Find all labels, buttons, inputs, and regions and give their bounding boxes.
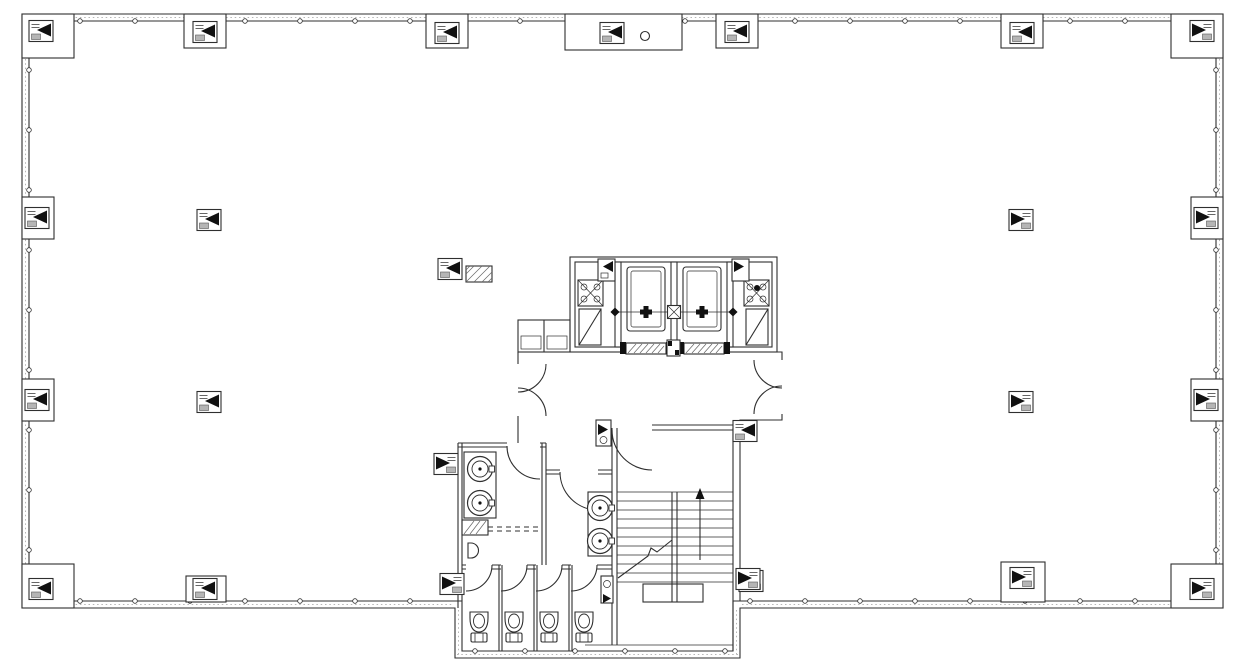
mullion-dot: [958, 19, 963, 24]
lobby-left-double-door: [518, 364, 546, 416]
wash-basin: [588, 529, 615, 554]
mullion-dot: [573, 649, 578, 654]
column-tag: [600, 23, 624, 44]
column-tag: [197, 210, 221, 231]
mullion-dot: [1133, 599, 1138, 604]
column-tag: [25, 208, 49, 229]
mullion-dot: [408, 19, 413, 24]
plumbing-fixtures: [468, 457, 615, 643]
mullion-dot: [408, 599, 413, 604]
column-tag: [1010, 23, 1034, 44]
stair-treads: [617, 492, 733, 582]
wash-basin: [588, 496, 615, 521]
column-tag: [1194, 390, 1218, 411]
mullion-dot: [793, 19, 798, 24]
mullion-dot: [27, 128, 32, 133]
mullion-dot: [1214, 68, 1219, 73]
stair-door-arc: [612, 430, 652, 470]
column-tag: [725, 22, 749, 43]
mullion-dot: [518, 19, 523, 24]
hatched-floor-box: [466, 266, 492, 282]
floor-access-markers: [466, 266, 492, 282]
womens-door-arc: [507, 446, 540, 479]
mullion-dot: [78, 599, 83, 604]
toilet: [505, 612, 523, 642]
lobby-right-double-door: [754, 360, 782, 414]
lobby-right-wall: [740, 352, 782, 428]
floor-box-hatch: [466, 266, 492, 282]
mullion-dot: [1214, 128, 1219, 133]
shaft-divider: [615, 262, 621, 347]
mullion-dot: [523, 649, 528, 654]
floor-plan-canvas: [0, 0, 1245, 663]
mullion-dot: [1214, 428, 1219, 433]
column-tag: [1190, 21, 1214, 42]
privacy-screen-dashed: [488, 527, 542, 531]
mullion-dot: [243, 19, 248, 24]
elevator-door-threshold-right: [678, 342, 730, 354]
mullion-dot: [748, 599, 753, 604]
mens-top-wall: [546, 470, 612, 474]
mullion-dot: [848, 19, 853, 24]
column-tag: [25, 390, 49, 411]
mullion-dot: [133, 599, 138, 604]
mullion-dot: [27, 428, 32, 433]
column-tag: [29, 579, 53, 600]
mullion-dot: [1214, 188, 1219, 193]
mullion-dot: [913, 599, 918, 604]
column-tag: [1190, 579, 1214, 600]
column-tag: [440, 574, 464, 595]
column-tag: [197, 392, 221, 413]
mullion-dot: [1214, 488, 1219, 493]
column-tag: [1010, 568, 1034, 589]
elevator-door-threshold-left: [620, 342, 672, 354]
column-tag: [29, 21, 53, 42]
toilet: [540, 612, 558, 642]
toilet: [470, 612, 488, 642]
restroom-center-wall: [542, 443, 546, 565]
mullion-dot: [298, 19, 303, 24]
mullion-dot: [1214, 368, 1219, 373]
mullion-dot: [673, 649, 678, 654]
fire-hose-tag: [596, 420, 611, 446]
mullion-dot: [27, 188, 32, 193]
mullion-dot: [473, 649, 478, 654]
mullion-dot: [1068, 19, 1073, 24]
column-tag: [434, 454, 458, 475]
mullion-dot: [353, 19, 358, 24]
mullion-dot: [903, 19, 908, 24]
wash-basin: [468, 457, 495, 482]
column-tag: [736, 569, 760, 590]
hydrant-tag: [601, 576, 613, 603]
stair-walls: [612, 420, 740, 651]
column-tag: [1009, 210, 1033, 231]
mullion-dot: [1078, 599, 1083, 604]
mullion-dot: [27, 368, 32, 373]
mullion-dot: [298, 599, 303, 604]
mullion-dot: [723, 649, 728, 654]
column-tag: [193, 22, 217, 43]
mullion-dot: [27, 488, 32, 493]
mullion-dot: [1214, 548, 1219, 553]
mullion-dot: [623, 649, 628, 654]
elevator-core: [570, 257, 777, 356]
column-tag: [1194, 208, 1218, 229]
column-tag: [733, 421, 757, 442]
mullion-dot: [243, 599, 248, 604]
mullion-dot: [78, 19, 83, 24]
mullion-dot: [1214, 308, 1219, 313]
shaft-divider: [671, 262, 677, 347]
mullion-dot: [27, 248, 32, 253]
toilet: [575, 612, 593, 642]
stair-direction-arrow: [696, 488, 705, 499]
column-tag: [435, 23, 459, 44]
mullion-dot: [968, 599, 973, 604]
wash-basin: [468, 491, 495, 516]
mullion-dot: [133, 19, 138, 24]
mullion-dot: [27, 548, 32, 553]
mullion-dot: [27, 68, 32, 73]
column-tag: [193, 579, 217, 600]
column-tag: [438, 259, 462, 280]
mullion-dot: [683, 19, 688, 24]
stair-landing: [643, 584, 703, 602]
mullion-dot: [27, 308, 32, 313]
mullion-dot: [1123, 19, 1128, 24]
mullion-dot: [803, 599, 808, 604]
stair-stringer: [672, 492, 677, 602]
mullion-dot: [353, 599, 358, 604]
cleaners-sink: [462, 520, 488, 535]
mullion-dot: [1214, 248, 1219, 253]
mullion-dot: [858, 599, 863, 604]
urinal: [468, 543, 479, 558]
floor-plan-svg: [0, 0, 1245, 663]
restroom-top-wall: [458, 443, 546, 447]
column-tag: [1009, 392, 1033, 413]
